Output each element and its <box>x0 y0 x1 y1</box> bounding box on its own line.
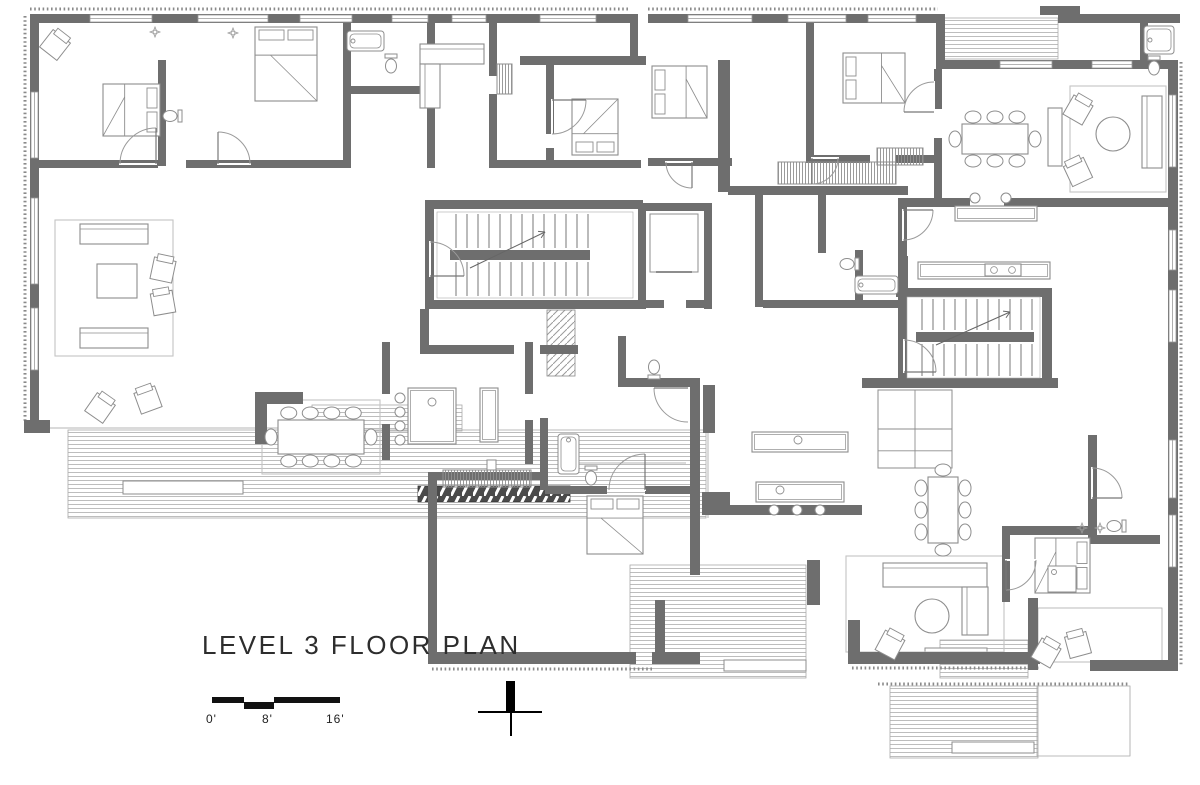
floor-plan-drawing <box>0 0 1200 785</box>
floor-plan-sheet: LEVEL 3 FLOOR PLAN 0' 8' 16' <box>0 0 1200 785</box>
